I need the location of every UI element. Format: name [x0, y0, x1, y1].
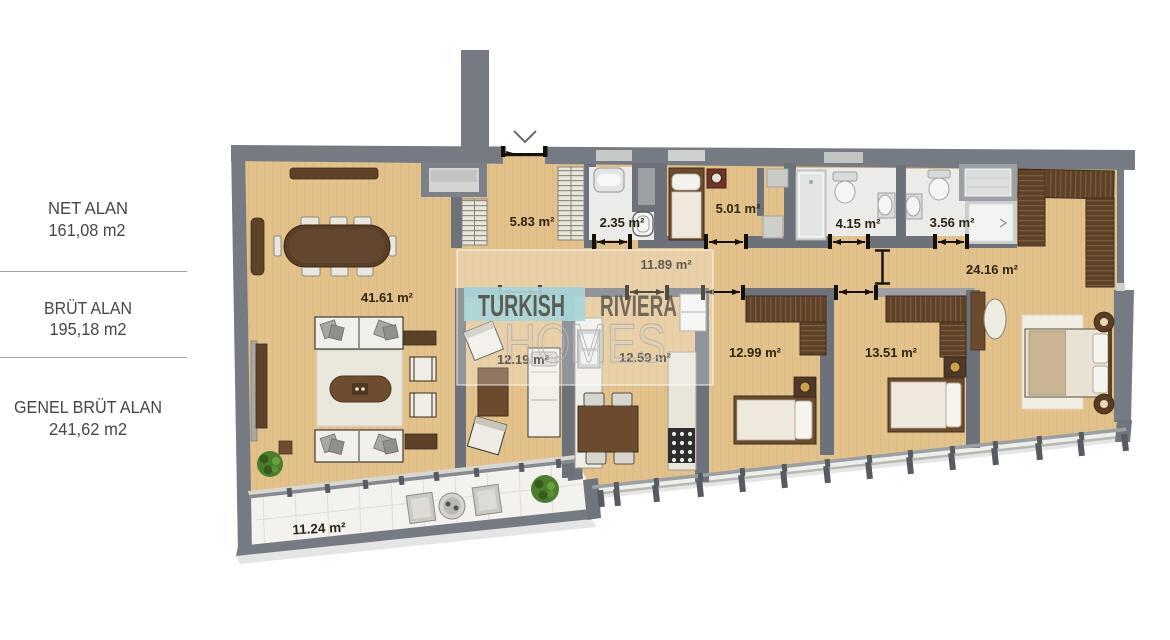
svg-text:2.35 m²: 2.35 m² [600, 215, 645, 230]
svg-text:5.01 m²: 5.01 m² [716, 201, 761, 216]
svg-text:11.24 m²: 11.24 m² [292, 520, 347, 538]
svg-text:24.16 m²: 24.16 m² [966, 262, 1019, 277]
svg-text:NET ALAN: NET ALAN [48, 198, 128, 218]
svg-text:161,08 m2: 161,08 m2 [49, 220, 126, 240]
svg-text:195,18 m2: 195,18 m2 [50, 319, 127, 339]
svg-text:12.99 m²: 12.99 m² [729, 345, 782, 360]
svg-text:GENEL BRÜT ALAN: GENEL BRÜT ALAN [14, 397, 162, 417]
svg-text:5.83 m²: 5.83 m² [510, 214, 555, 229]
svg-text:BRÜT ALAN: BRÜT ALAN [44, 298, 132, 318]
svg-text:241,62 m2: 241,62 m2 [49, 419, 127, 439]
svg-text:13.51 m²: 13.51 m² [865, 345, 918, 360]
svg-text:3.56 m²: 3.56 m² [930, 215, 975, 230]
svg-text:HOMES: HOMES [504, 312, 666, 374]
svg-text:41.61 m²: 41.61 m² [361, 290, 414, 305]
svg-text:4.15 m²: 4.15 m² [836, 216, 881, 231]
